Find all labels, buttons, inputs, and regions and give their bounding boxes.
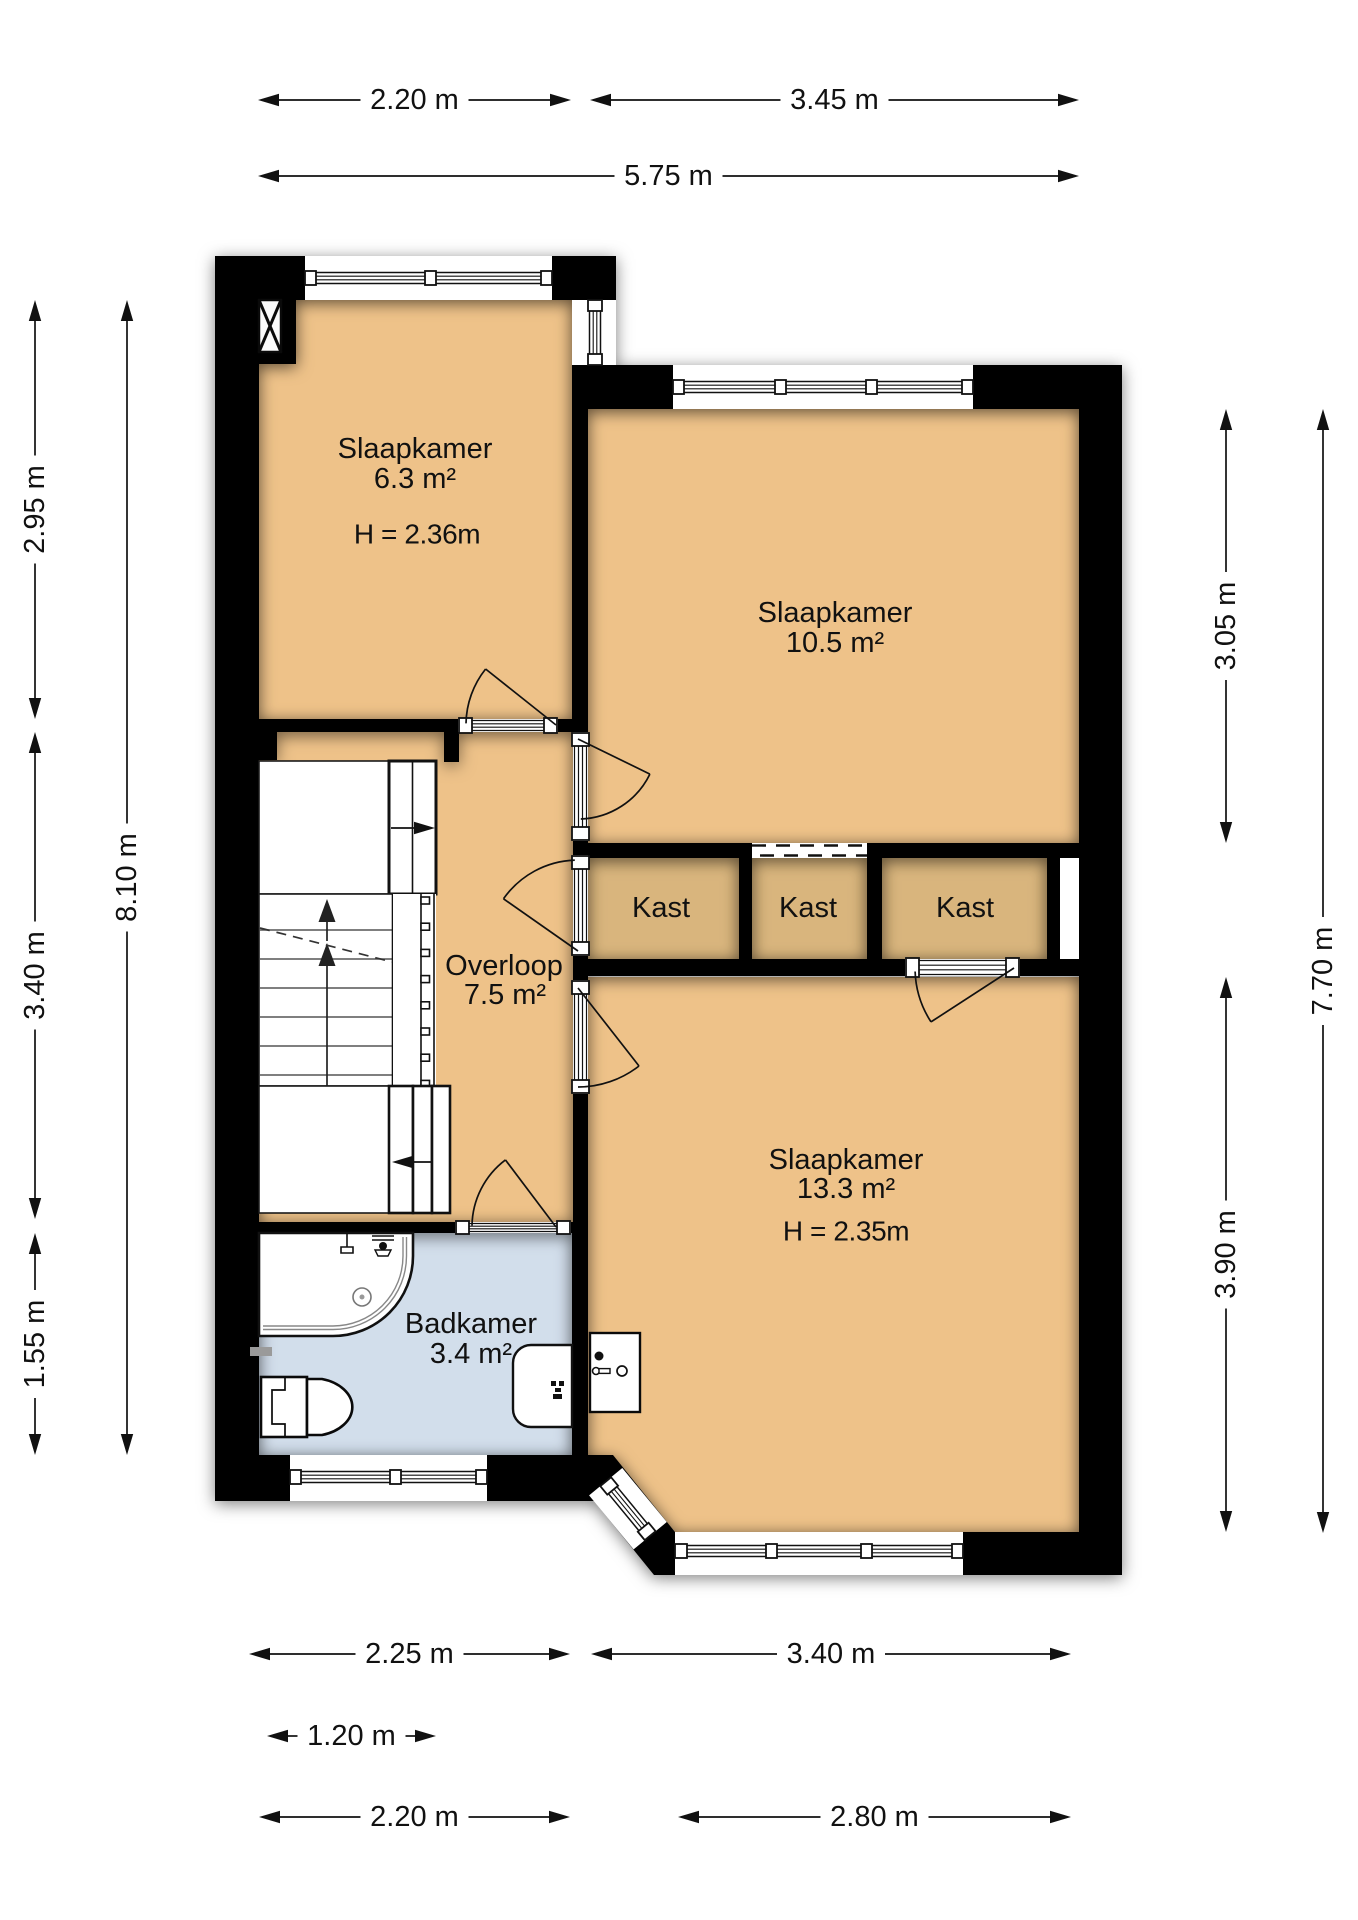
svg-text:H = 2.36m: H = 2.36m	[354, 519, 480, 550]
svg-text:2.20 m: 2.20 m	[370, 84, 459, 116]
svg-text:H = 2.35m: H = 2.35m	[783, 1216, 909, 1247]
svg-text:1.20 m: 1.20 m	[307, 1720, 396, 1752]
svg-text:Kast: Kast	[779, 892, 837, 924]
svg-text:2.25 m: 2.25 m	[365, 1638, 454, 1670]
svg-text:1.55 m: 1.55 m	[19, 1300, 51, 1389]
svg-text:Kast: Kast	[632, 892, 690, 924]
svg-text:3.90 m: 3.90 m	[1210, 1210, 1242, 1299]
svg-text:Slaapkamer: Slaapkamer	[758, 597, 913, 629]
svg-text:13.3 m²: 13.3 m²	[797, 1173, 896, 1205]
svg-text:3.45 m: 3.45 m	[790, 84, 879, 116]
svg-text:7.5 m²: 7.5 m²	[464, 979, 547, 1011]
svg-text:Slaapkamer: Slaapkamer	[338, 433, 493, 465]
svg-text:2.20 m: 2.20 m	[370, 1801, 459, 1833]
svg-text:8.10 m: 8.10 m	[111, 833, 143, 922]
svg-text:10.5 m²: 10.5 m²	[786, 627, 885, 659]
svg-text:Slaapkamer: Slaapkamer	[769, 1144, 924, 1176]
svg-text:Kast: Kast	[936, 892, 994, 924]
svg-text:3.4 m²: 3.4 m²	[430, 1338, 513, 1370]
svg-text:7.70 m: 7.70 m	[1307, 927, 1339, 1016]
svg-text:3.40 m: 3.40 m	[787, 1638, 876, 1670]
svg-text:Badkamer: Badkamer	[405, 1308, 538, 1340]
svg-text:2.80 m: 2.80 m	[830, 1801, 919, 1833]
svg-text:6.3 m²: 6.3 m²	[374, 463, 457, 495]
svg-text:2.95 m: 2.95 m	[19, 465, 51, 554]
svg-text:3.40 m: 3.40 m	[19, 931, 51, 1020]
svg-text:5.75 m: 5.75 m	[624, 160, 713, 192]
svg-text:Overloop: Overloop	[445, 950, 563, 982]
svg-text:3.05 m: 3.05 m	[1210, 582, 1242, 671]
